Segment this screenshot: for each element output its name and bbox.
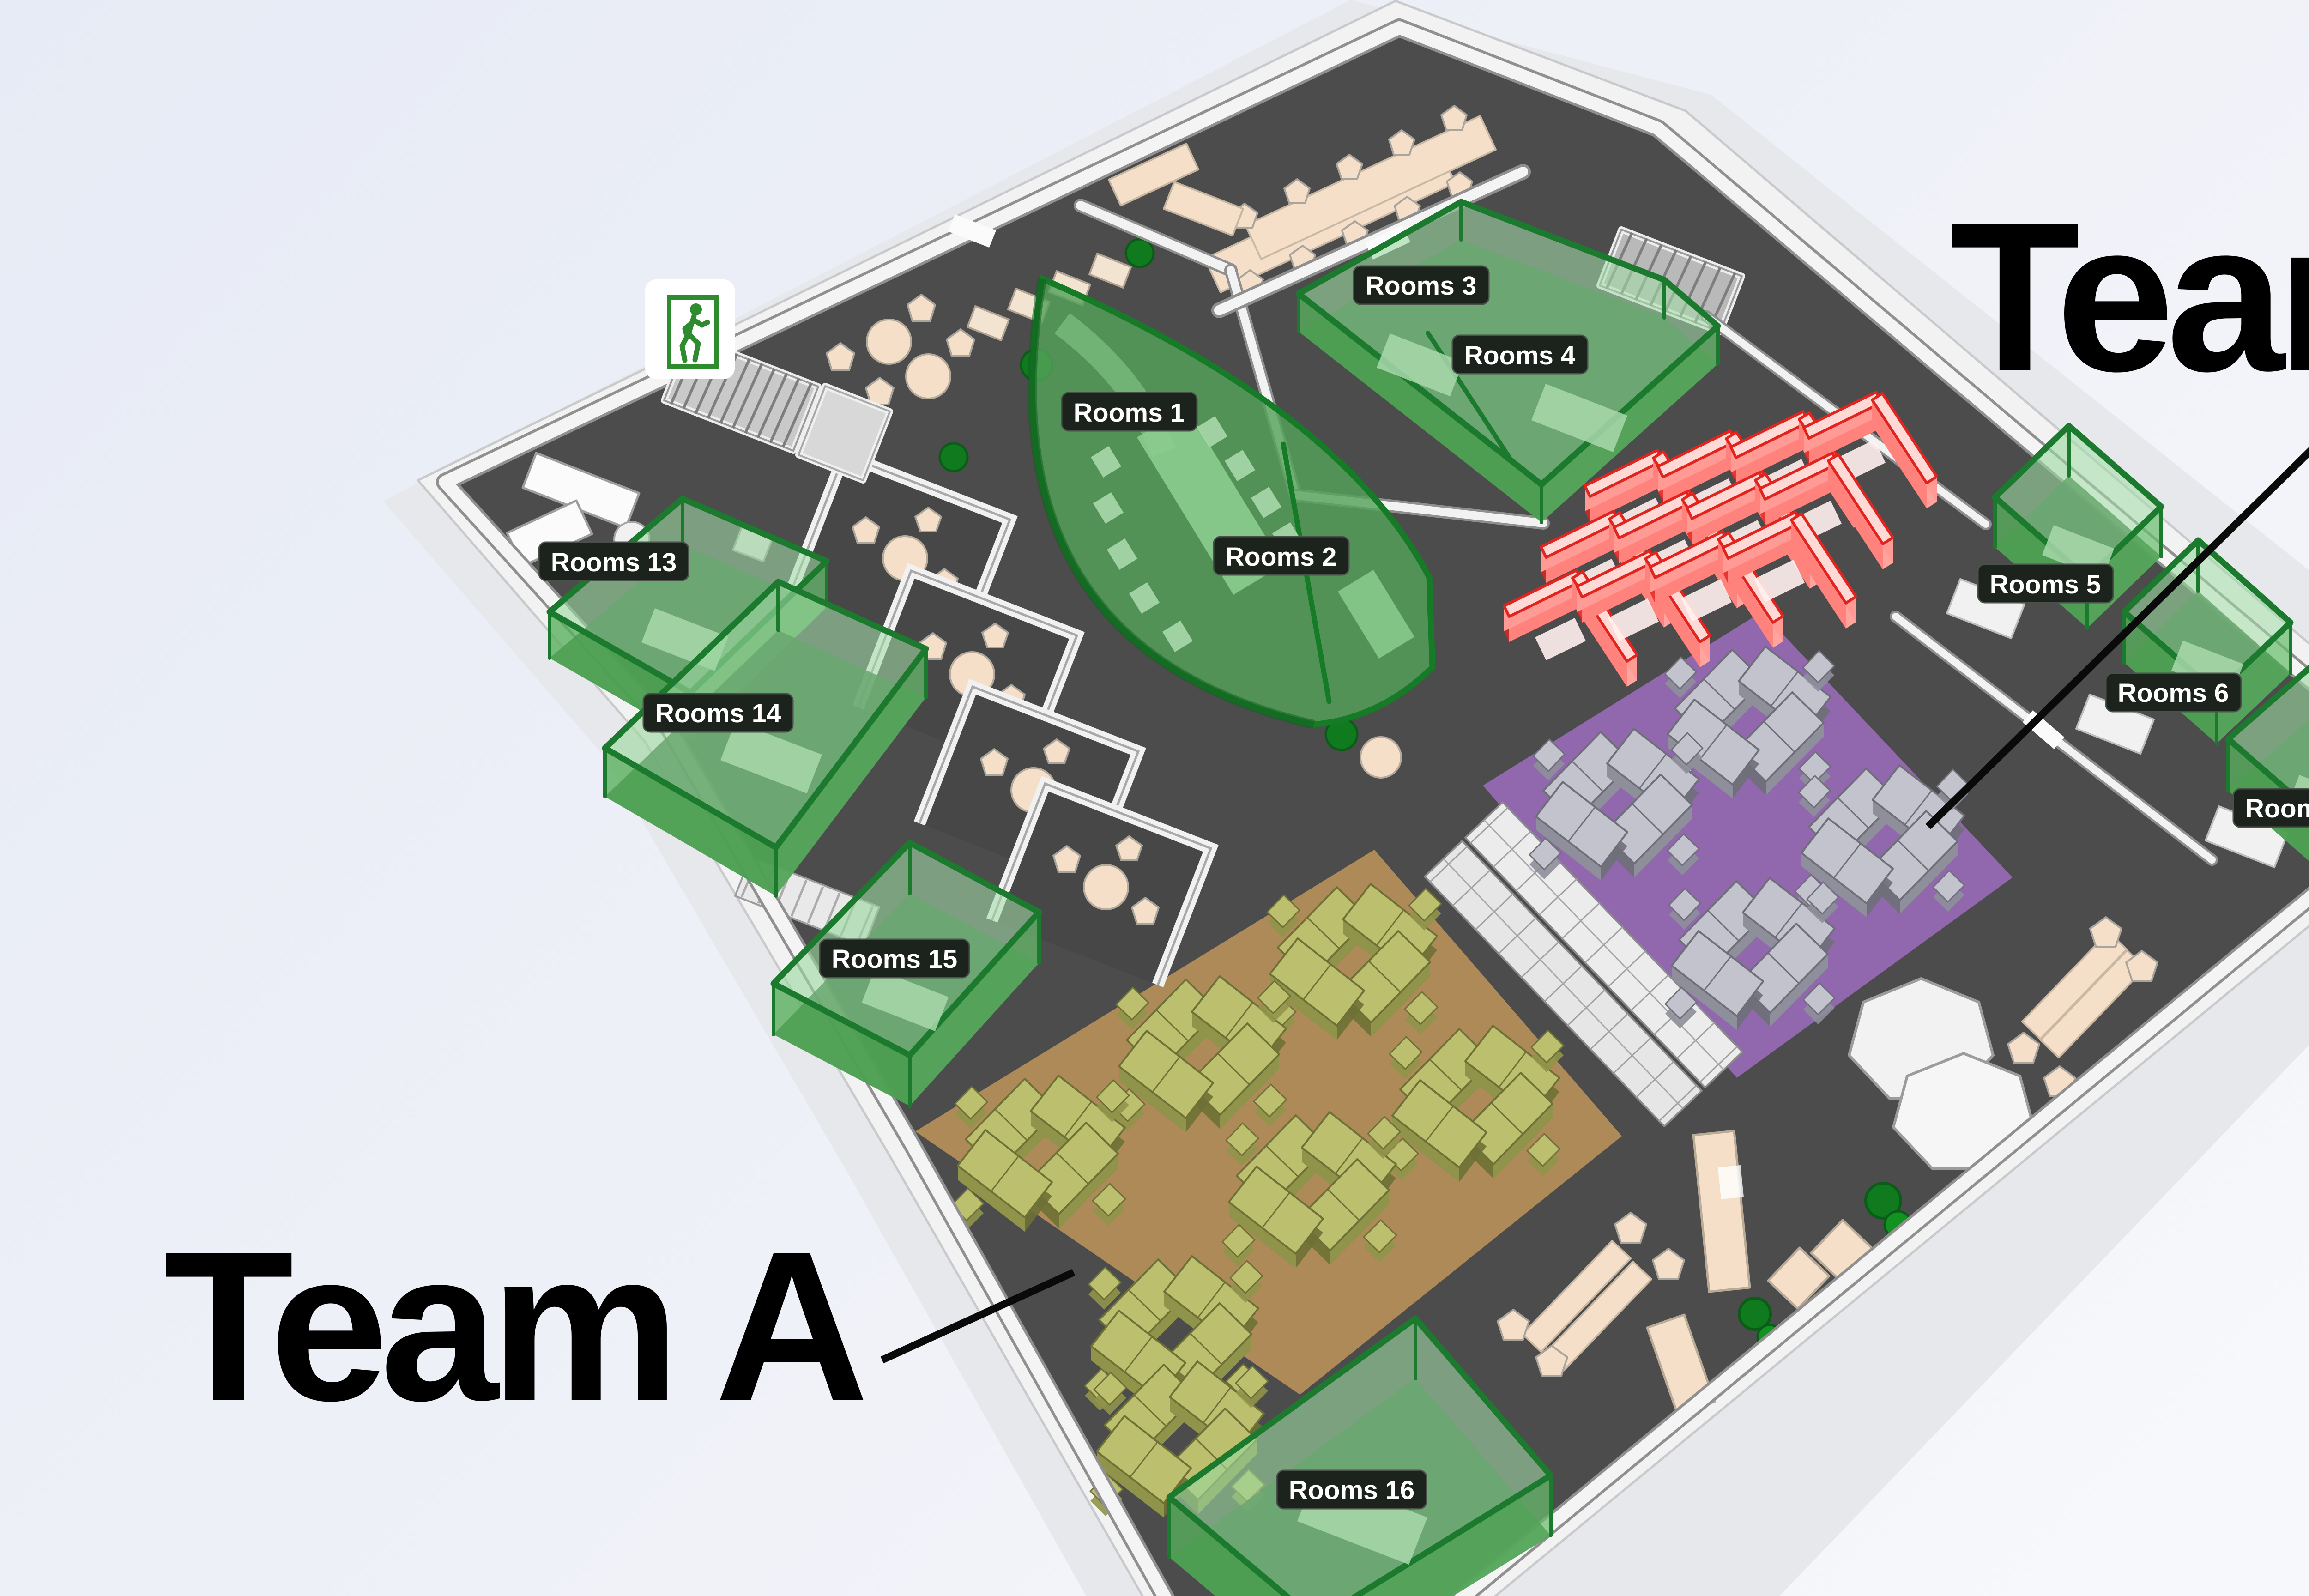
svg-text:Team B: Team B	[1950, 177, 2309, 416]
svg-text:Rooms 14: Rooms 14	[655, 699, 781, 728]
svg-text:Rooms 3: Rooms 3	[1366, 271, 1477, 301]
svg-text:Rooms 13: Rooms 13	[551, 548, 677, 577]
svg-text:Team A: Team A	[163, 1207, 865, 1445]
svg-text:Rooms 1: Rooms 1	[1074, 398, 1185, 428]
svg-text:Rooms 4: Rooms 4	[1464, 341, 1576, 370]
svg-text:Rooms 12: Rooms 12	[2245, 794, 2309, 823]
svg-text:Rooms 2: Rooms 2	[1226, 542, 1337, 572]
svg-text:Rooms 16: Rooms 16	[1289, 1475, 1414, 1505]
svg-text:Rooms 5: Rooms 5	[1990, 570, 2101, 599]
svg-text:Rooms 15: Rooms 15	[832, 944, 957, 974]
svg-text:Rooms 6: Rooms 6	[2118, 678, 2229, 708]
